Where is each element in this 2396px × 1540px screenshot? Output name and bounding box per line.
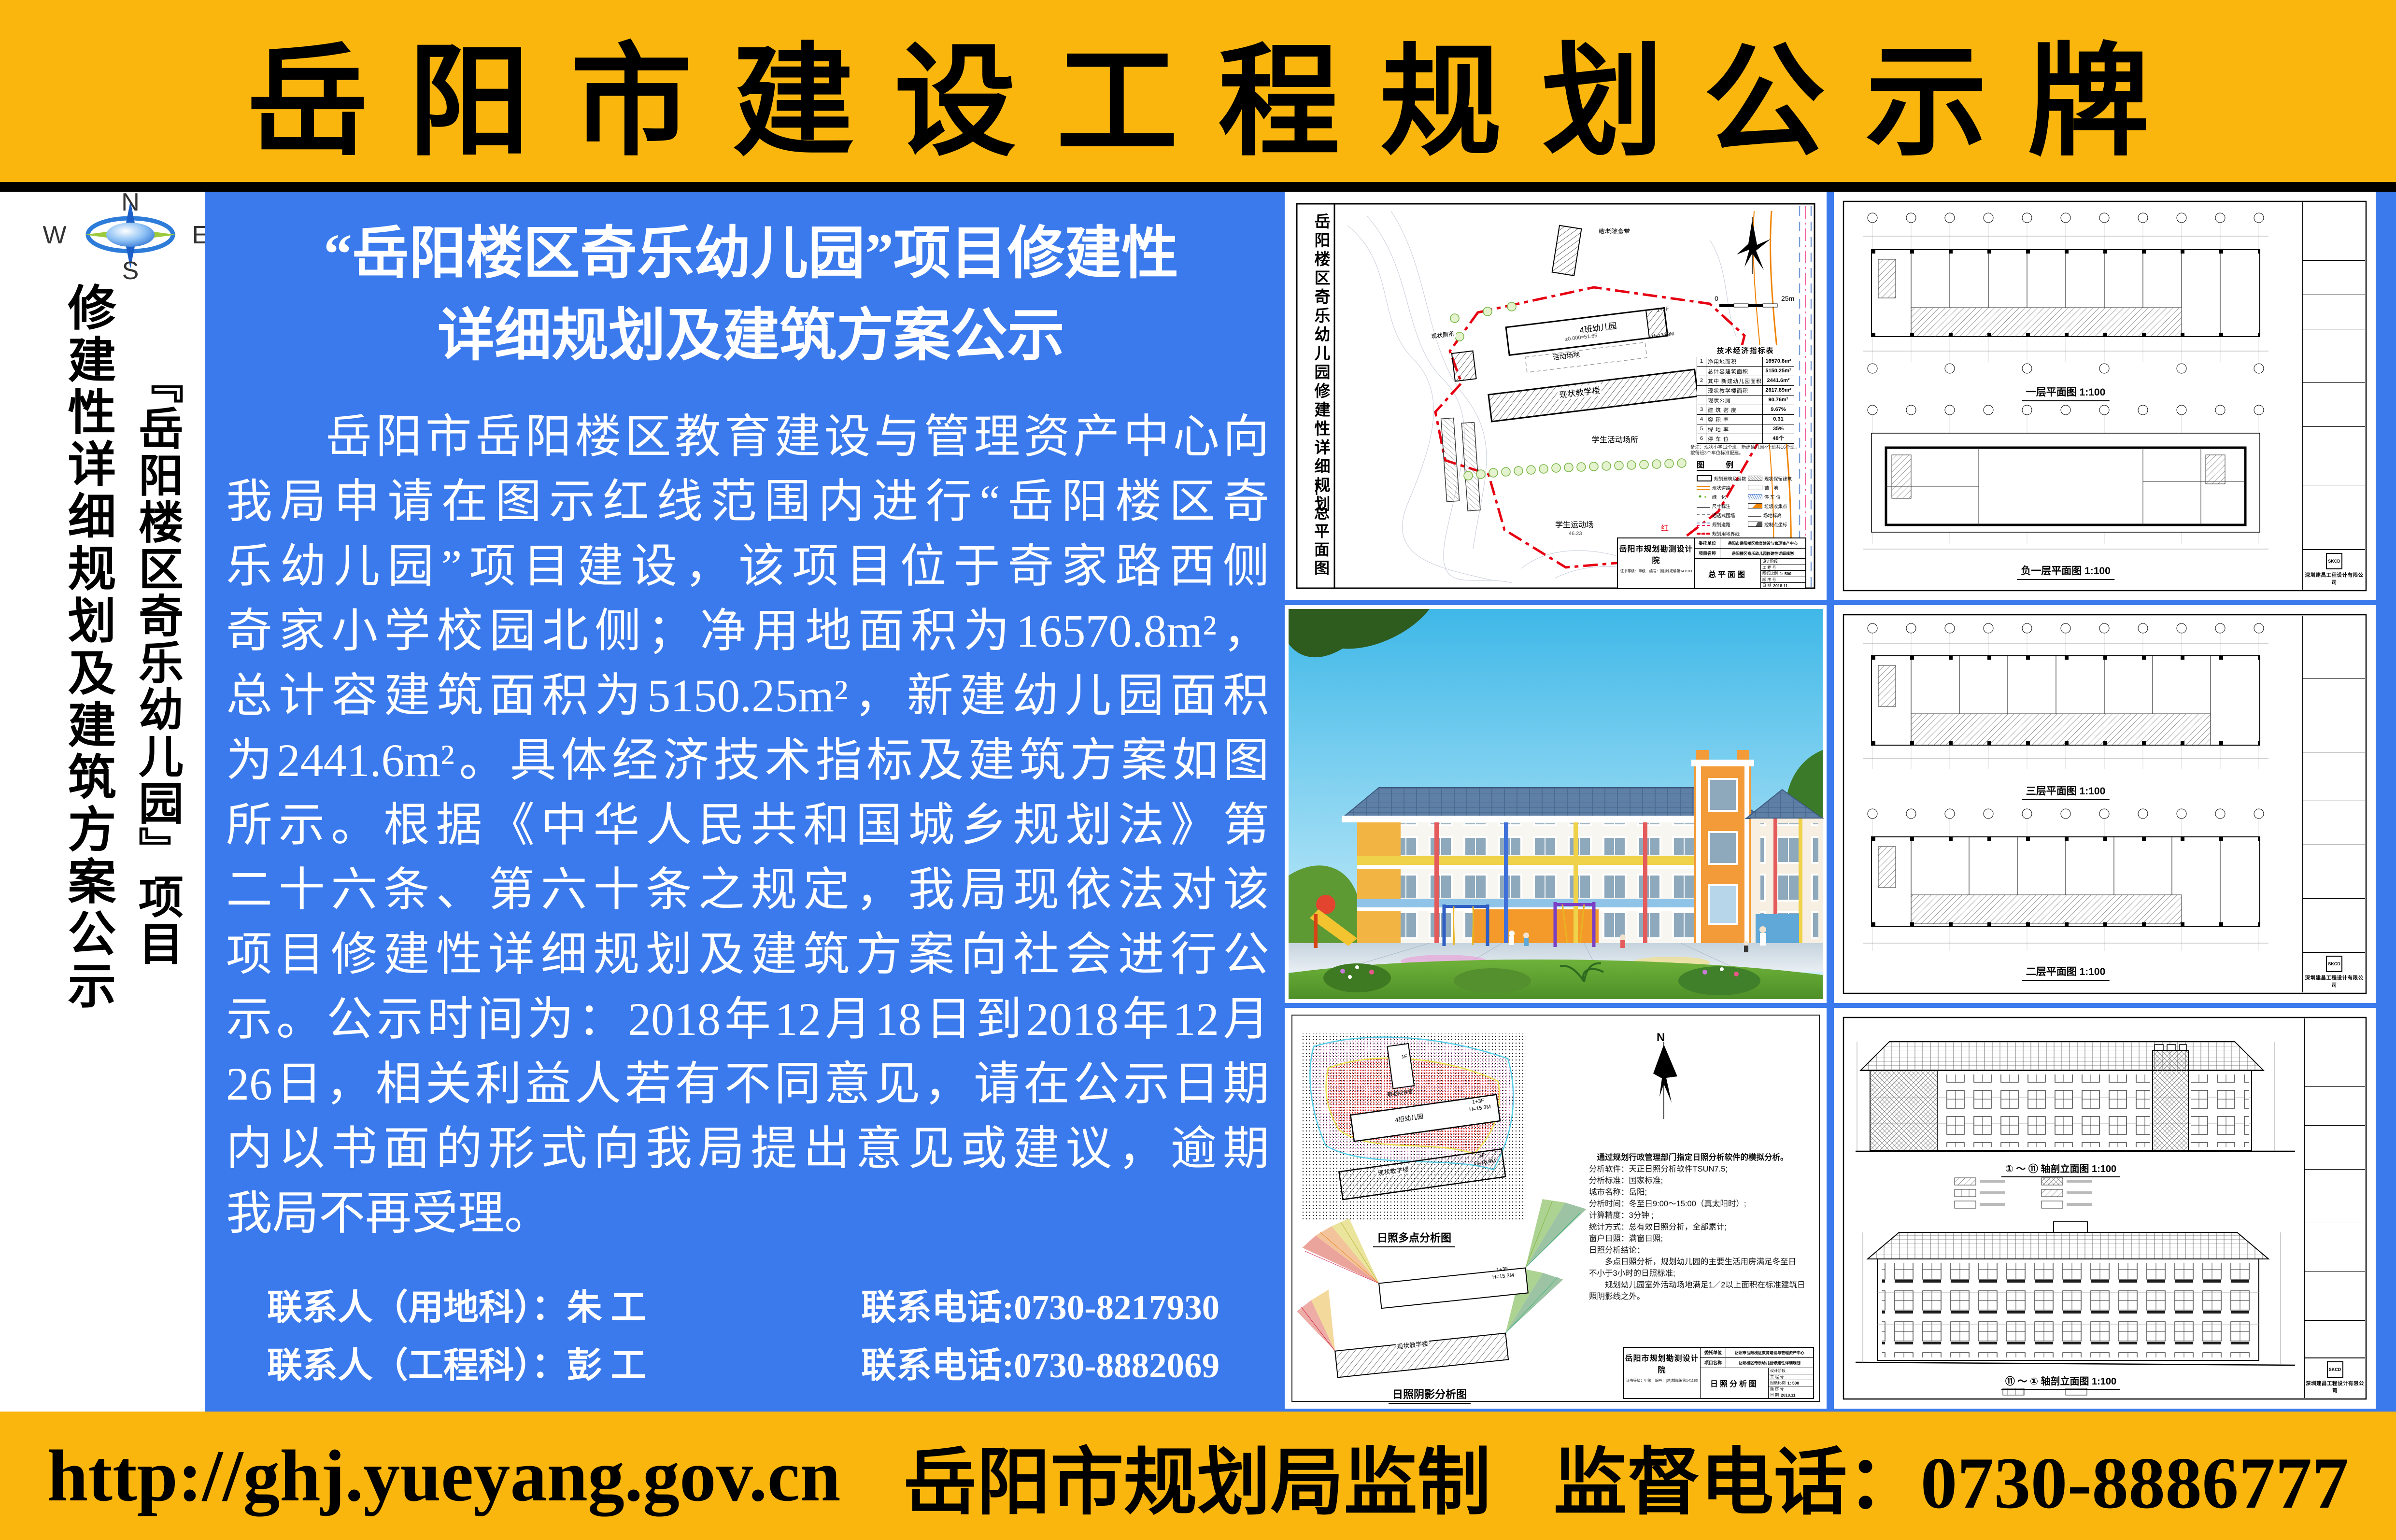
legend-item: 停 车 位 [1748, 492, 1799, 501]
title-block-meta: 设计阶段 工 程 号 图纸比例1: 500 顺 序 号 日 期2018.11 [1760, 559, 1805, 589]
table-row: 现状公厕90.76m² [1697, 396, 1794, 405]
side-vertical-title-project: 『岳阳楼区奇乐幼儿园』项目 [124, 358, 189, 967]
notice-body-line: 内以书面的形式向我局提出意见或建议，逾期 [226, 1116, 1269, 1181]
contact-row-land: 联系人（用地科）：朱 工 联系电话:0730-8217930 [226, 1279, 1274, 1332]
notice-body: 岳阳市岳阳楼区教育建设与管理资产中心向 我局申请在图示红线范围内进行“岳阳楼区奇… [226, 405, 1269, 1246]
north-letter: N [1657, 1031, 1665, 1045]
notice-body-line: 我局不再受理。 [226, 1181, 1269, 1246]
label-multipoint-analysis: 日照多点分析图 [1373, 1229, 1455, 1247]
institute-cert: 证书等级：甲级 编号：[建]城规编第141183 [1618, 568, 1694, 574]
table-row: 2其中 新建幼儿园面积2441.6m² [1697, 376, 1794, 386]
contact-phone: 联系电话:0730-8217930 [861, 1279, 1219, 1330]
floor-plan-drawing [1834, 605, 2376, 1003]
legend-item: 控制点坐标 [1748, 520, 1799, 529]
legend: 图 例 规划建筑及层数 现状保留建筑 现状道路 铺 地 绿 化 停 车 位 尺寸… [1697, 458, 1799, 538]
analysis-text: 通过规划行政管理部门指定日照分析软件的模拟分析。分析软件：天正日照分析软件TSU… [1589, 1152, 1810, 1302]
label-canteen: 敬老院食堂 [1599, 226, 1630, 236]
building-rendering [1285, 605, 1827, 1003]
website-url: http://ghj.yueyang.gov.cn [47, 1434, 841, 1518]
table-row: 总计容建筑面积5150.25m² [1697, 367, 1794, 376]
compass-e-label: E [192, 221, 205, 249]
supervision-phone: 监督电话：0730-8886777 [1554, 1423, 2349, 1529]
compass-w-label: W [43, 221, 66, 249]
compass-icon: N S W E [27, 192, 205, 282]
notice-body-line: 乐幼儿园”项目建设，该项目位于奇家路西侧 [226, 534, 1269, 599]
drawing-side-title: 岳阳楼区奇乐幼儿园修建性详细规划 [1301, 213, 1332, 514]
title-block: 岳阳市规划勘测设计院 证书等级：甲级 编号：[建]城规编第141183 委托单位… [1617, 537, 1806, 589]
table-note: 备注：现状小学12个班，新建幼儿园4个班共16个班，按每班3个车位标准配建。 [1690, 445, 1801, 456]
notice-board: 岳阳市建设工程规划公示牌 N S W E 修建性详细规划及建筑方案公示 『岳阳楼… [0, 0, 2396, 1540]
notice-body-line: 二十六条、第六十条之规定，我局现依法对该 [226, 858, 1269, 922]
company-logo: SKCD [2326, 956, 2342, 972]
design-institute: 岳阳市规划勘测设计院 [1624, 1352, 1700, 1375]
panel-sunlight-analysis: 1F 敬老院食堂 4班幼儿园 1+3F H=15.3M 现状教学楼 3F H=1… [1285, 1008, 1827, 1409]
drawing-title-strip: SKCD 深圳建昌工程设计有限公司 [2302, 616, 2365, 992]
panel-floor-plans-1: 一层平面图 1:100 负一层平面图 1:100 SKCD 深圳建昌工程设计有限… [1834, 192, 2376, 600]
supervising-agency: 岳阳市规划局监制 [904, 1423, 1491, 1529]
drawing-name: 总平面图 [1695, 559, 1760, 589]
table-row: 3建 筑 密 度9.67% [1697, 405, 1794, 415]
legend-item: 尺寸标注 [1697, 501, 1748, 510]
tag-canteen-floors: 1F [1401, 1054, 1407, 1060]
panel-floor-plans-2: 三层平面图 1:100 二层平面图 1:100 SKCD 深圳建昌工程设计有限公… [1834, 605, 2376, 1003]
project-row: 项目名称岳阳楼区奇乐幼儿园修建性详细规划 [1701, 1358, 1813, 1368]
drawing-title-strip: SKCD 深圳建昌工程设计有限公司 [2304, 1018, 2365, 1398]
legend-item: 现状道路 [1697, 483, 1748, 492]
legend-item: 绿 化 [1697, 492, 1748, 501]
panel-site-plan: 0 25m 岳阳楼区奇乐幼儿园修建性详细规划 总平面图 4班幼儿园 1+3F H… [1285, 192, 1827, 600]
plan-label-2f: 二层平面图 1:100 [2022, 963, 2110, 981]
label-student-area: 学生活动场所 [1592, 433, 1638, 445]
table-row: 1净用地面积16570.8m² [1697, 357, 1794, 367]
design-company: SKCD 深圳建昌工程设计有限公司 [2303, 549, 2365, 590]
design-company: SKCD 深圳建昌工程设计有限公司 [2305, 1357, 2365, 1398]
label-sports-ground: 学生运动场 [1555, 518, 1594, 530]
institute-cert: 证书等级：甲级 编号：[建]城规编第141183 [1624, 1378, 1700, 1383]
notice-body-line: 我局申请在图示红线范围内进行“岳阳楼区奇 [226, 469, 1269, 534]
bottom-banner: http://ghj.yueyang.gov.cn 岳阳市规划局监制 监督电话：… [0, 1412, 2396, 1540]
panel-rendering [1285, 605, 1827, 1003]
notice-body-line: 为2441.6m²。具体经济技术指标及建筑方案如图 [226, 728, 1269, 793]
plan-label-3f: 三层平面图 1:100 [2022, 783, 2110, 800]
legend-item: 铺 地 [1748, 483, 1799, 492]
legend-item: 规划建筑及层数 [1697, 474, 1748, 483]
notice-body-line: 总计容建筑面积为5150.25m²，新建幼儿园面积 [226, 664, 1269, 728]
client-row: 委托单位岳阳市岳阳楼区教育建设与管理资产中心 [1695, 538, 1805, 549]
table-row: 6停 车 位48个 [1697, 434, 1794, 444]
compass-n-label: N [121, 192, 140, 216]
company-logo: SKCD [2326, 553, 2342, 569]
table-row: 现状教学楼面积2617.89m² [1697, 386, 1794, 396]
label-sport-level: 46.23 [1569, 531, 1582, 537]
legend-item: 现状保留建筑 [1748, 474, 1799, 483]
notice-body-line: 所示。根据《中华人民共和国城乡规划法》第 [226, 793, 1269, 858]
contact-person: 联系人（工程科）：彭 工 [267, 1337, 646, 1388]
side-vertical-title-plan: 修建性详细规划及建筑方案公示 [52, 283, 122, 1013]
notice-body-line: 奇家小学校园北侧；净用地面积为16570.8m²， [226, 599, 1269, 664]
plan-label-1f: 一层平面图 1:100 [2022, 384, 2110, 401]
table-row: 4容 积 率0.31 [1697, 415, 1794, 424]
project-row: 项目名称岳阳楼区奇乐幼儿园修建性详细规划 [1695, 549, 1805, 559]
notice-title-line2: 详细规划及建筑方案公示 [217, 289, 1285, 371]
title-block: 岳阳市规划勘测设计院 证书等级：甲级 编号：[建]城规编第141183 委托单位… [1623, 1347, 1814, 1399]
plan-label-b1: 负一层平面图 1:100 [2017, 563, 2114, 580]
company-logo: SKCD [2327, 1361, 2343, 1378]
elevation-label-1: ① ～ ⑪ 轴剖立面图 1:100 [2001, 1160, 2120, 1177]
notice-body-line: 岳阳市岳阳楼区教育建设与管理资产中心向 [226, 405, 1269, 469]
elevation-label-2: ⑪ ～ ① 轴剖立面图 1:100 [2001, 1373, 2120, 1390]
banner-divider [0, 182, 2396, 192]
notice-body-line: 26日，相关利益人若有不同意见，请在公示日期 [226, 1052, 1269, 1116]
contact-person: 联系人（用地科）：朱 工 [267, 1279, 646, 1330]
scale-max: 25m [1781, 295, 1794, 302]
legend-title: 图 例 [1697, 458, 1740, 471]
top-banner: 岳阳市建设工程规划公示牌 [0, 0, 2396, 182]
design-institute: 岳阳市规划勘测设计院 [1618, 542, 1694, 565]
client-row: 委托单位岳阳市岳阳楼区教育建设与管理资产中心 [1701, 1348, 1813, 1358]
label-shadow-analysis: 日照阴影分析图 [1389, 1385, 1471, 1404]
notice-body-line: 示。公示时间为：2018年12月18日到2018年12月 [226, 987, 1269, 1052]
legend-item: 通透式围墙 [1697, 510, 1748, 520]
panel-elevations: ① ～ ⑪ 轴剖立面图 1:100 ⑪ ～ ① 轴剖立面图 1:100 SKCD… [1834, 1008, 2376, 1409]
legend-item: 规划道路 [1697, 520, 1748, 529]
notice-body-line: 项目修建性详细规划及建筑方案向社会进行公 [226, 922, 1269, 987]
legend-item: 规划用地界线 [1697, 529, 1748, 538]
title-block-meta: 设计阶段 工 程 号 图纸比例1: 500 顺 序 号 日 期2018.11 [1768, 1368, 1813, 1398]
elevation-1 [1856, 1042, 2295, 1151]
compass-s-label: S [122, 257, 139, 282]
contact-phone: 联系电话:0730-8882069 [861, 1337, 1219, 1388]
design-company: SKCD 深圳建昌工程设计有限公司 [2303, 952, 2365, 992]
table-row: 5绿 地 率35% [1697, 424, 1794, 434]
indicator-table: 技术经济指标表 1净用地面积16570.8m² 总计容建筑面积5150.25m²… [1697, 345, 1794, 444]
drawing-side-subtitle: 总平面图 [1301, 505, 1332, 578]
notice-title-line1: “岳阳楼区奇乐幼儿园”项目修建性 [217, 207, 1285, 289]
drawing-name: 日照分析图 [1701, 1368, 1768, 1398]
contact-row-engineering: 联系人（工程科）：彭 工 联系电话:0730-8882069 [226, 1337, 1274, 1390]
elevation-drawing [1834, 1008, 2376, 1409]
scale-zero: 0 [1715, 295, 1718, 302]
tag-teaching-floors: 3F [1478, 1152, 1485, 1159]
sunlight-dot-field [1300, 1032, 1526, 1220]
legend-item: 场地标高 [1748, 510, 1799, 520]
drawing-title-strip: SKCD 深圳建昌工程设计有限公司 [2302, 202, 2365, 590]
elevation-2 [1856, 1222, 2295, 1365]
indicator-table-title: 技术经济指标表 [1697, 345, 1794, 355]
legend-item: 垃圾收集点 [1748, 501, 1799, 510]
board-title: 岳阳市建设工程规划公示牌 [207, 3, 2189, 179]
